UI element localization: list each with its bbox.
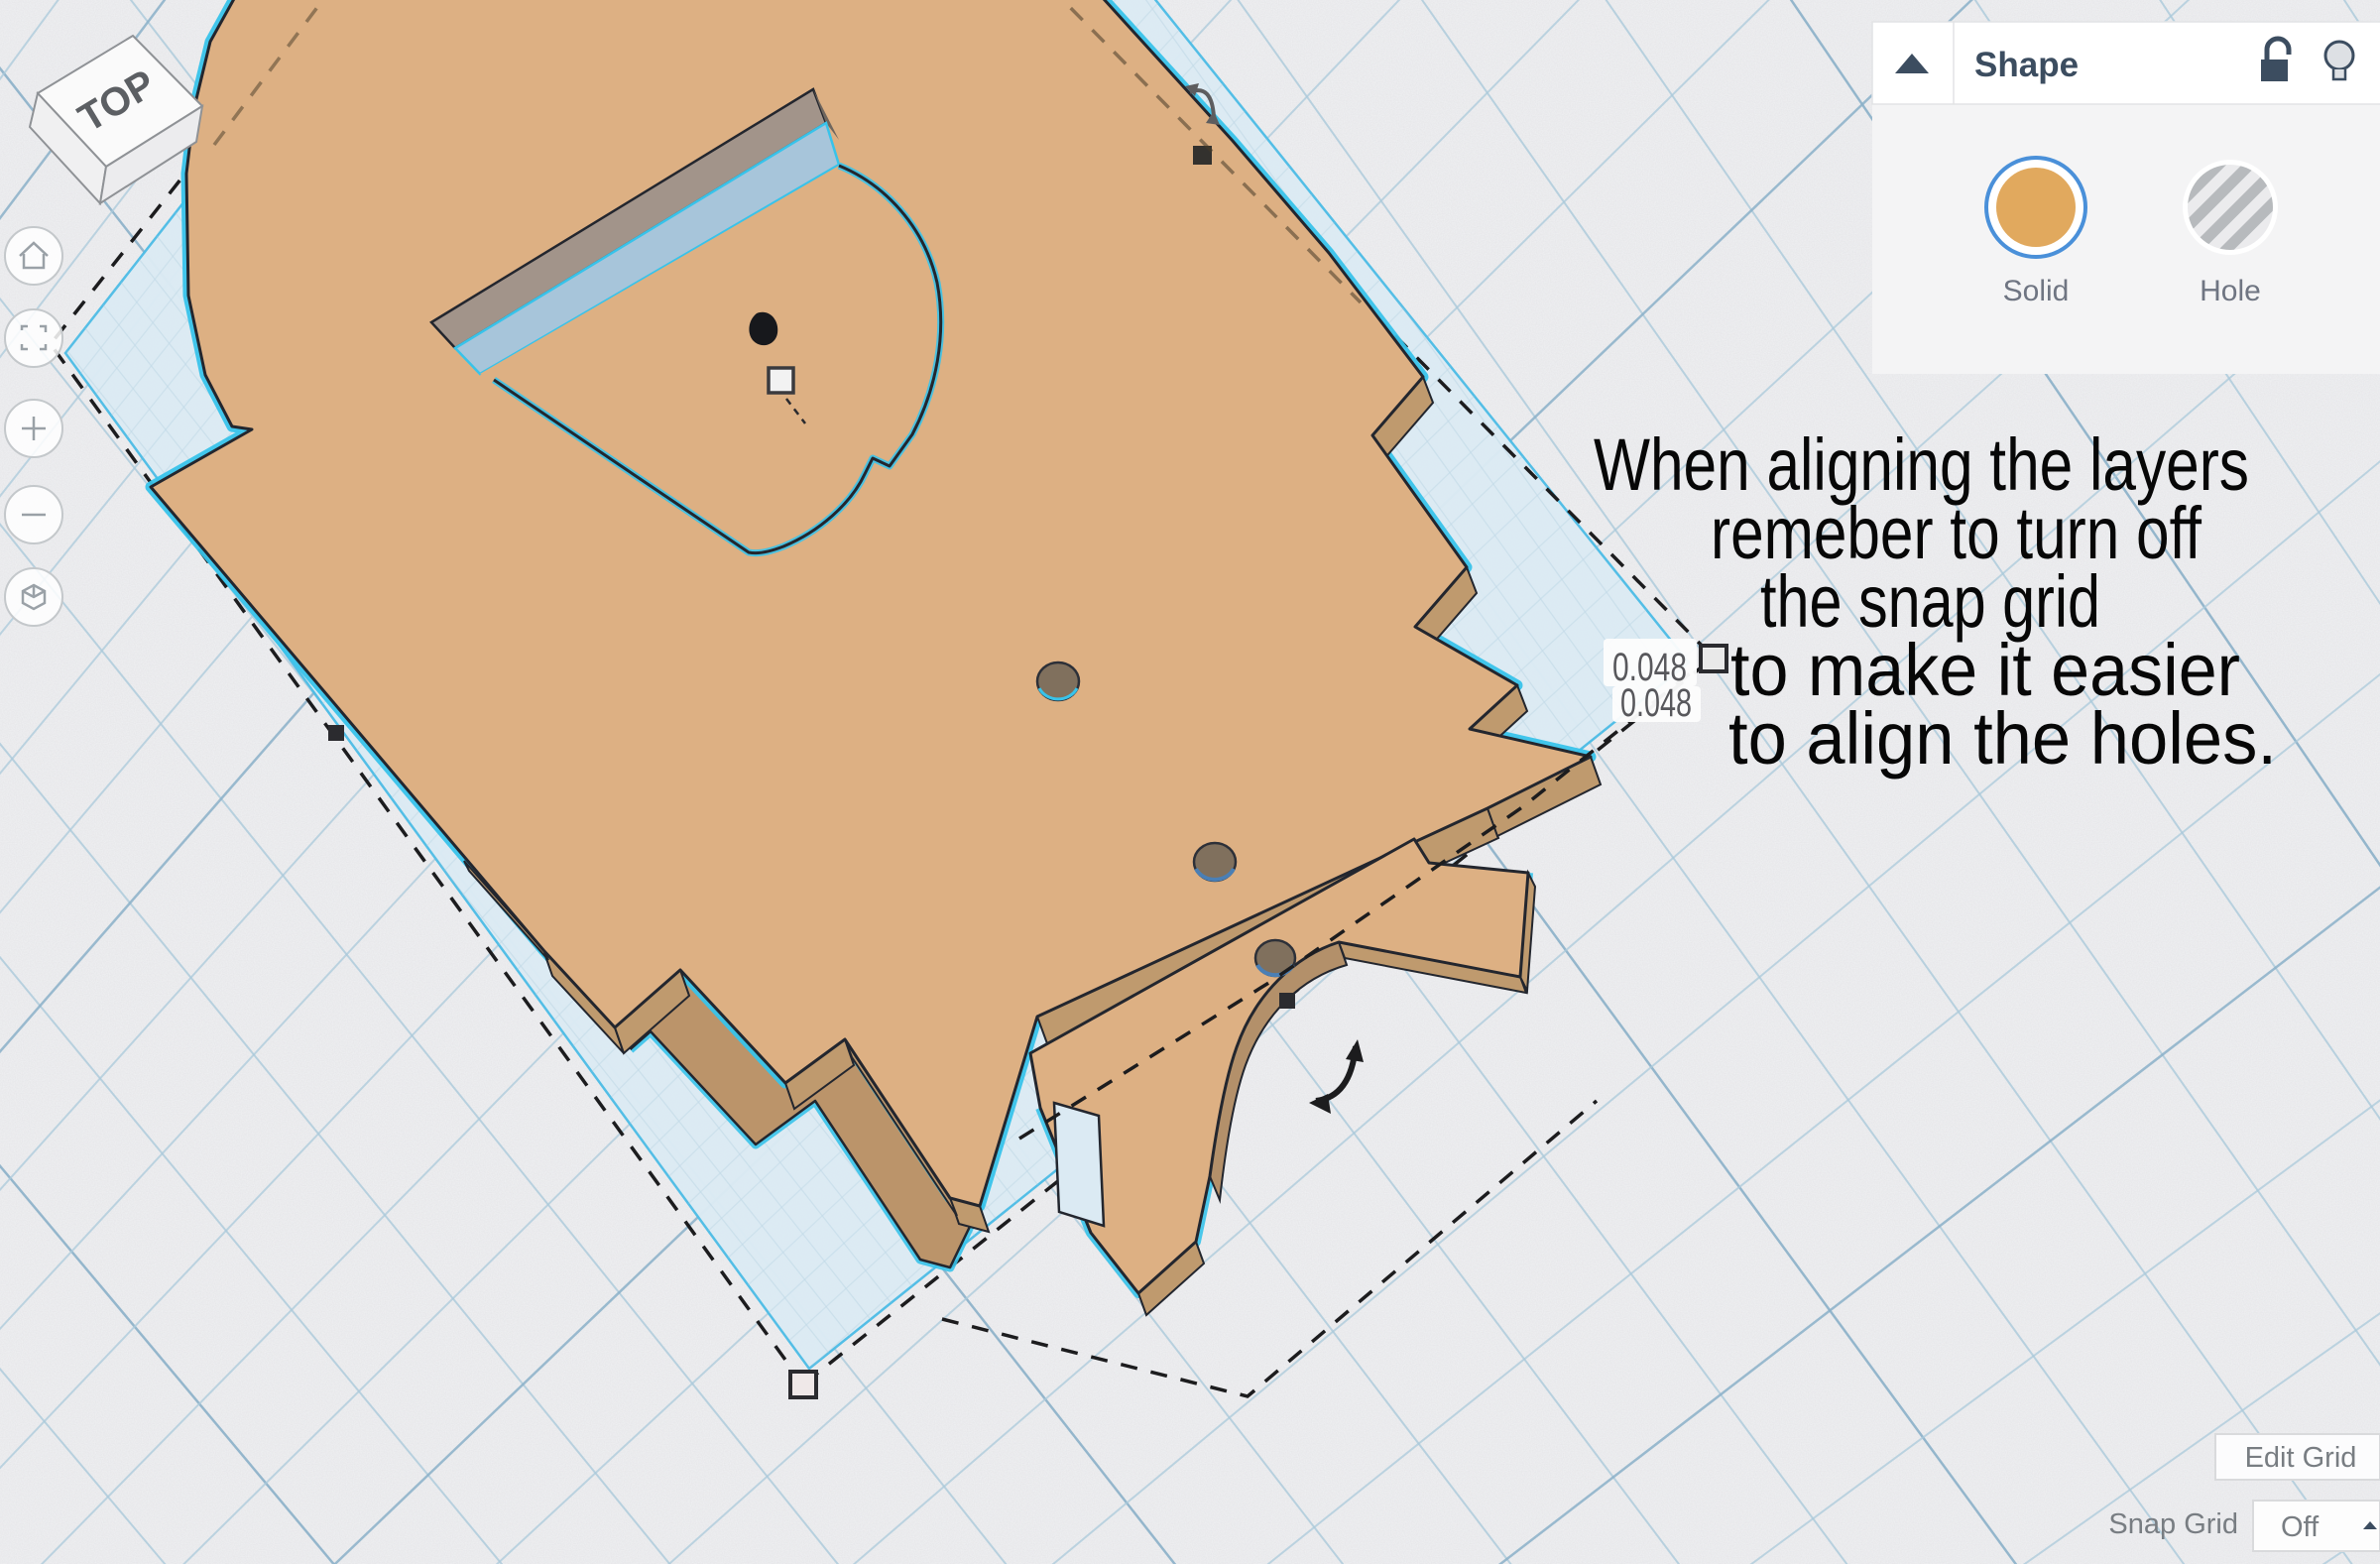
svg-text:to align the holes.: to align the holes. — [1728, 697, 2277, 780]
svg-text:Hole: Hole — [2200, 275, 2261, 307]
svg-text:Snap Grid: Snap Grid — [2108, 1508, 2238, 1540]
svg-text:0.048: 0.048 — [1620, 681, 1692, 725]
svg-text:Shape: Shape — [1974, 46, 2079, 84]
svg-text:Solid: Solid — [2003, 275, 2070, 307]
svg-text:Edit Grid: Edit Grid — [2245, 1442, 2357, 1474]
svg-text:Off: Off — [2281, 1511, 2320, 1543]
